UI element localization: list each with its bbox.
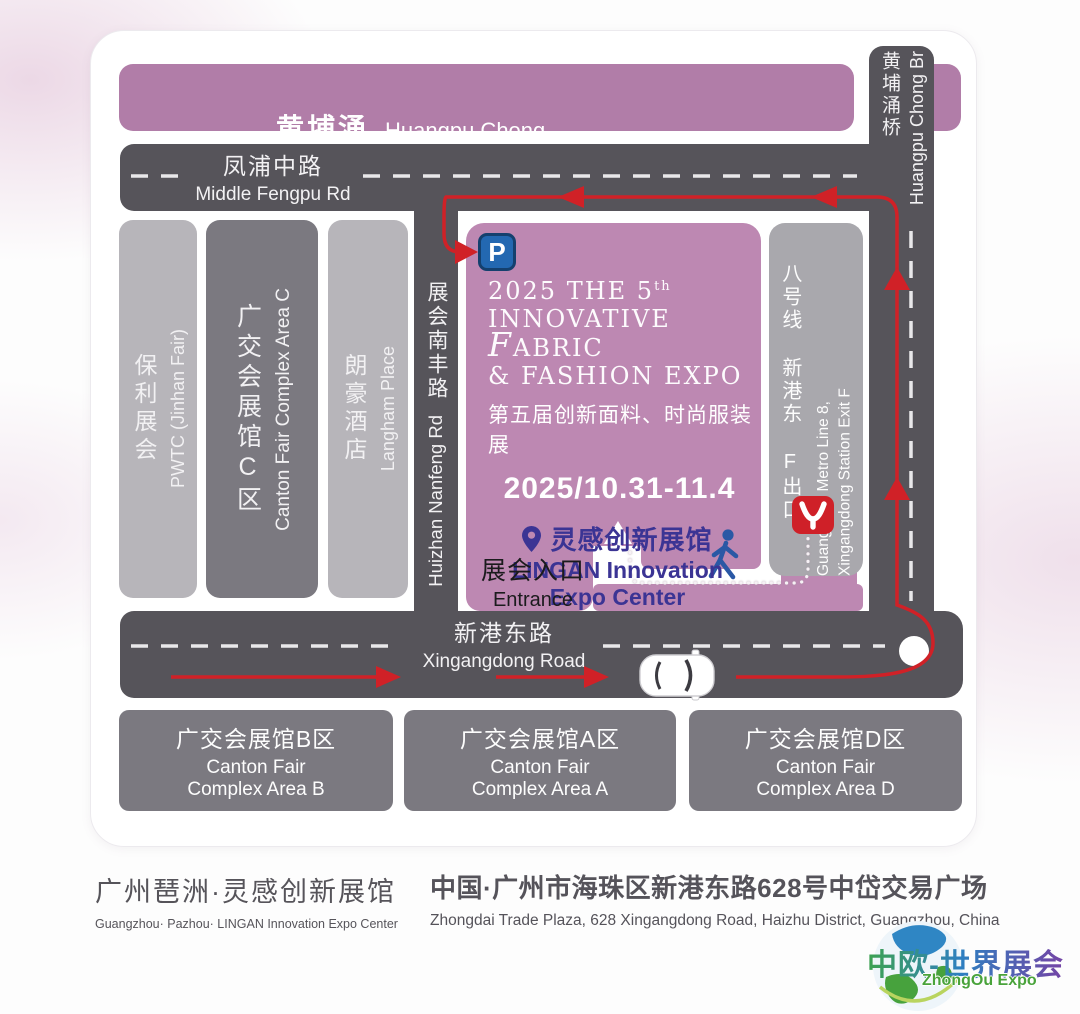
expo-title-abric: ABRIC [513, 334, 604, 362]
organizer-logo-en: ZhongOu Expo [922, 972, 1037, 990]
entrance-label-en: Entrance [468, 589, 598, 612]
building-pwtc: 保利展会 PWTC (Jinhan Fair) [119, 220, 197, 598]
building-canton-fair-area-b: 广交会展馆B区 Canton FairComplex Area B [119, 710, 393, 811]
area-d-en2: Complex Area D [756, 779, 894, 800]
building-canton-fair-area-c: 广交会展馆C区 Canton Fair Complex Area C [206, 220, 318, 598]
expo-title-line2: INNOVATIVE FABRIC [488, 305, 761, 362]
area-d-label-en: Canton FairComplex Area D [756, 757, 894, 801]
fengpu-road-label: 凤浦中路 Middle Fengpu Rd [183, 147, 363, 206]
expo-subtitle-zh: 第五届创新面料、时尚服装展 [488, 399, 761, 459]
page: 保利展会 PWTC (Jinhan Fair) 广交会展馆C区 Canton F… [0, 0, 1080, 1014]
river-label: 黄埔涌 Huangpu Chong [276, 107, 545, 147]
river-label-zh: 黄埔涌 [276, 107, 369, 147]
building-pwtc-label-zh: 保利展会 [127, 353, 161, 465]
location-pin-icon [522, 526, 541, 552]
building-langham-label-zh: 朗豪酒店 [337, 353, 371, 465]
bridge-label-en: Huangpu Chong Br [907, 51, 928, 205]
xingang-label-zh: 新港东路 [409, 614, 599, 648]
expo-dates: 2025/10.31-11.4 [478, 472, 761, 506]
area-d-en1: Canton Fair [776, 757, 875, 778]
river-huangpu-chong-right [931, 64, 961, 131]
area-d-label-zh: 广交会展馆D区 [745, 720, 907, 754]
area-a-label-zh: 广交会展馆A区 [460, 720, 620, 754]
expo-title-fancy-f: F [488, 325, 513, 364]
expo-title-line1: 2025 THE 5th [488, 277, 761, 305]
footer-address-zh: 中国·广州市海珠区新港东路628号中岱交易广场 [430, 868, 1000, 905]
area-a-label-en: Canton FairComplex Area A [472, 757, 608, 801]
map-card: 保利展会 PWTC (Jinhan Fair) 广交会展馆C区 Canton F… [90, 30, 977, 847]
nanfeng-road-label: 展会南丰路 Huizhan Nanfeng Rd [414, 281, 458, 587]
building-pwtc-label-en: PWTC (Jinhan Fair) [168, 329, 189, 488]
entrance-label-zh: 展会入口 [468, 551, 598, 587]
expo-title-year: 2025 THE 5 [488, 277, 654, 305]
xingang-road-label: 新港东路 Xingangdong Road [409, 614, 599, 673]
river-label-en: Huangpu Chong [385, 118, 545, 144]
fengpu-label-zh: 凤浦中路 [183, 147, 363, 181]
expo-title-innovative: INNOVATIVE [488, 305, 671, 333]
area-b-en1: Canton Fair [206, 757, 305, 778]
metro-exit-block: 八号线 新港东 F出口 Guangzhou Metro Line 8, Xing… [769, 223, 863, 576]
expo-title-line3: & FASHION EXPO [488, 362, 761, 390]
metro-label-en1: Guangzhou Metro Line 8, [815, 401, 832, 576]
building-canton-fair-area-a: 广交会展馆A区 Canton FairComplex Area A [404, 710, 676, 811]
expo-title-sup: th [654, 279, 672, 294]
footer-venue-name: 广州琶洲·灵感创新展馆 Guangzhou· Pazhou· LINGAN In… [95, 870, 398, 931]
bridge-label-zh: 黄埔涌桥 [876, 51, 903, 205]
building-langham-place: 朗豪酒店 Langham Place [328, 220, 408, 598]
footer-venue-zh: 广州琶洲·灵感创新展馆 [95, 870, 398, 909]
parking-icon: P [478, 233, 516, 271]
bridge-road-label: 黄埔涌桥 Huangpu Chong Br [869, 51, 935, 205]
parking-letter: P [488, 237, 505, 268]
building-area-c-label-zh: 广交会展馆C区 [230, 303, 266, 516]
fengpu-label-en: Middle Fengpu Rd [183, 184, 363, 206]
building-langham-label-en: Langham Place [378, 346, 399, 471]
area-b-label-zh: 广交会展馆B区 [176, 720, 336, 754]
nanfeng-label-zh: 展会南丰路 [421, 281, 451, 401]
area-b-en2: Complex Area B [187, 779, 324, 800]
area-a-en1: Canton Fair [490, 757, 589, 778]
nanfeng-label-en: Huizhan Nanfeng Rd [425, 415, 447, 587]
metro-label-zh: 八号线 新港东 F出口 [776, 263, 805, 576]
area-a-en2: Complex Area A [472, 779, 608, 800]
area-b-label-en: Canton FairComplex Area B [187, 757, 324, 801]
entrance-label: 展会入口 Entrance [468, 551, 598, 612]
building-area-c-label-en: Canton Fair Complex Area C [273, 288, 295, 531]
metro-label-en2: Xingangdong Station Exit F [837, 388, 854, 576]
footer-venue-en: Guangzhou· Pazhou· LINGAN Innovation Exp… [95, 917, 398, 931]
building-canton-fair-area-d: 广交会展馆D区 Canton FairComplex Area D [689, 710, 962, 811]
metro-label-en: Guangzhou Metro Line 8, Xingangdong Stat… [813, 263, 856, 576]
xingang-label-en: Xingangdong Road [409, 651, 599, 673]
